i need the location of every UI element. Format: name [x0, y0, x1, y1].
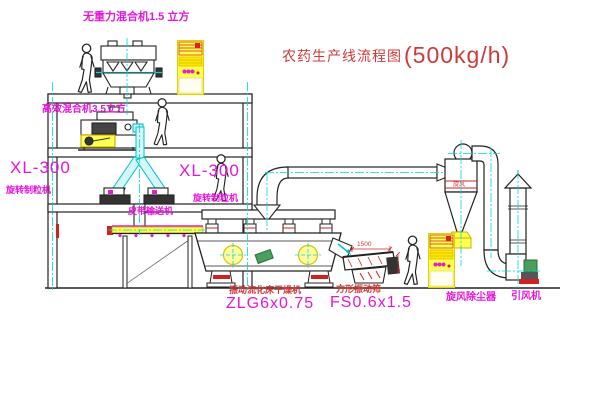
title-text: 农药生产线流程图 — [282, 49, 402, 63]
fluid-bed-dryer — [195, 210, 341, 287]
control-cabinet-upper — [178, 41, 204, 95]
page-title: 农药生产线流程图 (500kg/h) — [282, 44, 510, 67]
screen-dimension-label: 1500 — [357, 242, 371, 249]
weightless-mixer — [95, 41, 162, 98]
cyclone-band-label: 旋风 — [453, 182, 465, 188]
belt-conveyor-label: 皮带输送机 — [128, 207, 173, 216]
induced-draft-fan — [506, 254, 539, 284]
weightless-mixer-label: 无重力混合机1.5 立方 — [83, 12, 189, 23]
fan-label: 引风机 — [511, 292, 541, 302]
square-screen-model: FS0.6x1.5 — [330, 295, 412, 311]
cyclone-label: 旋风除尘器 — [446, 293, 496, 303]
fluid-bed-dryer-name: 振动流化床干燥机 — [229, 286, 301, 295]
granulator-right — [144, 188, 174, 204]
belt-conveyor — [107, 226, 203, 288]
square-vibrating-screen — [343, 246, 400, 283]
square-screen-name: 方形振动筛 — [336, 285, 381, 294]
granulator-left-model: XL-300 — [10, 159, 71, 176]
person-second-floor — [154, 99, 169, 145]
control-cabinet-lower — [429, 234, 455, 288]
granulator-right-name: 旋转制粒机 — [193, 194, 238, 203]
fluid-bed-dryer-model: ZLG6x0.75 — [226, 296, 314, 312]
granulator-left — [100, 188, 130, 204]
high-efficiency-mixer-label: 高效混合机3.5立方 — [42, 105, 126, 115]
diagram-canvas: 无重力混合机1.5 立方 农药生产线流程图 (500kg/h) 高效混合机3.5… — [0, 0, 600, 403]
person-roof — [78, 44, 94, 92]
granulator-left-name: 旋转制粒机 — [6, 186, 51, 195]
title-capacity: (500kg/h) — [404, 44, 510, 67]
granulator-right-model: XL-300 — [179, 162, 240, 179]
person-ground — [404, 236, 420, 284]
